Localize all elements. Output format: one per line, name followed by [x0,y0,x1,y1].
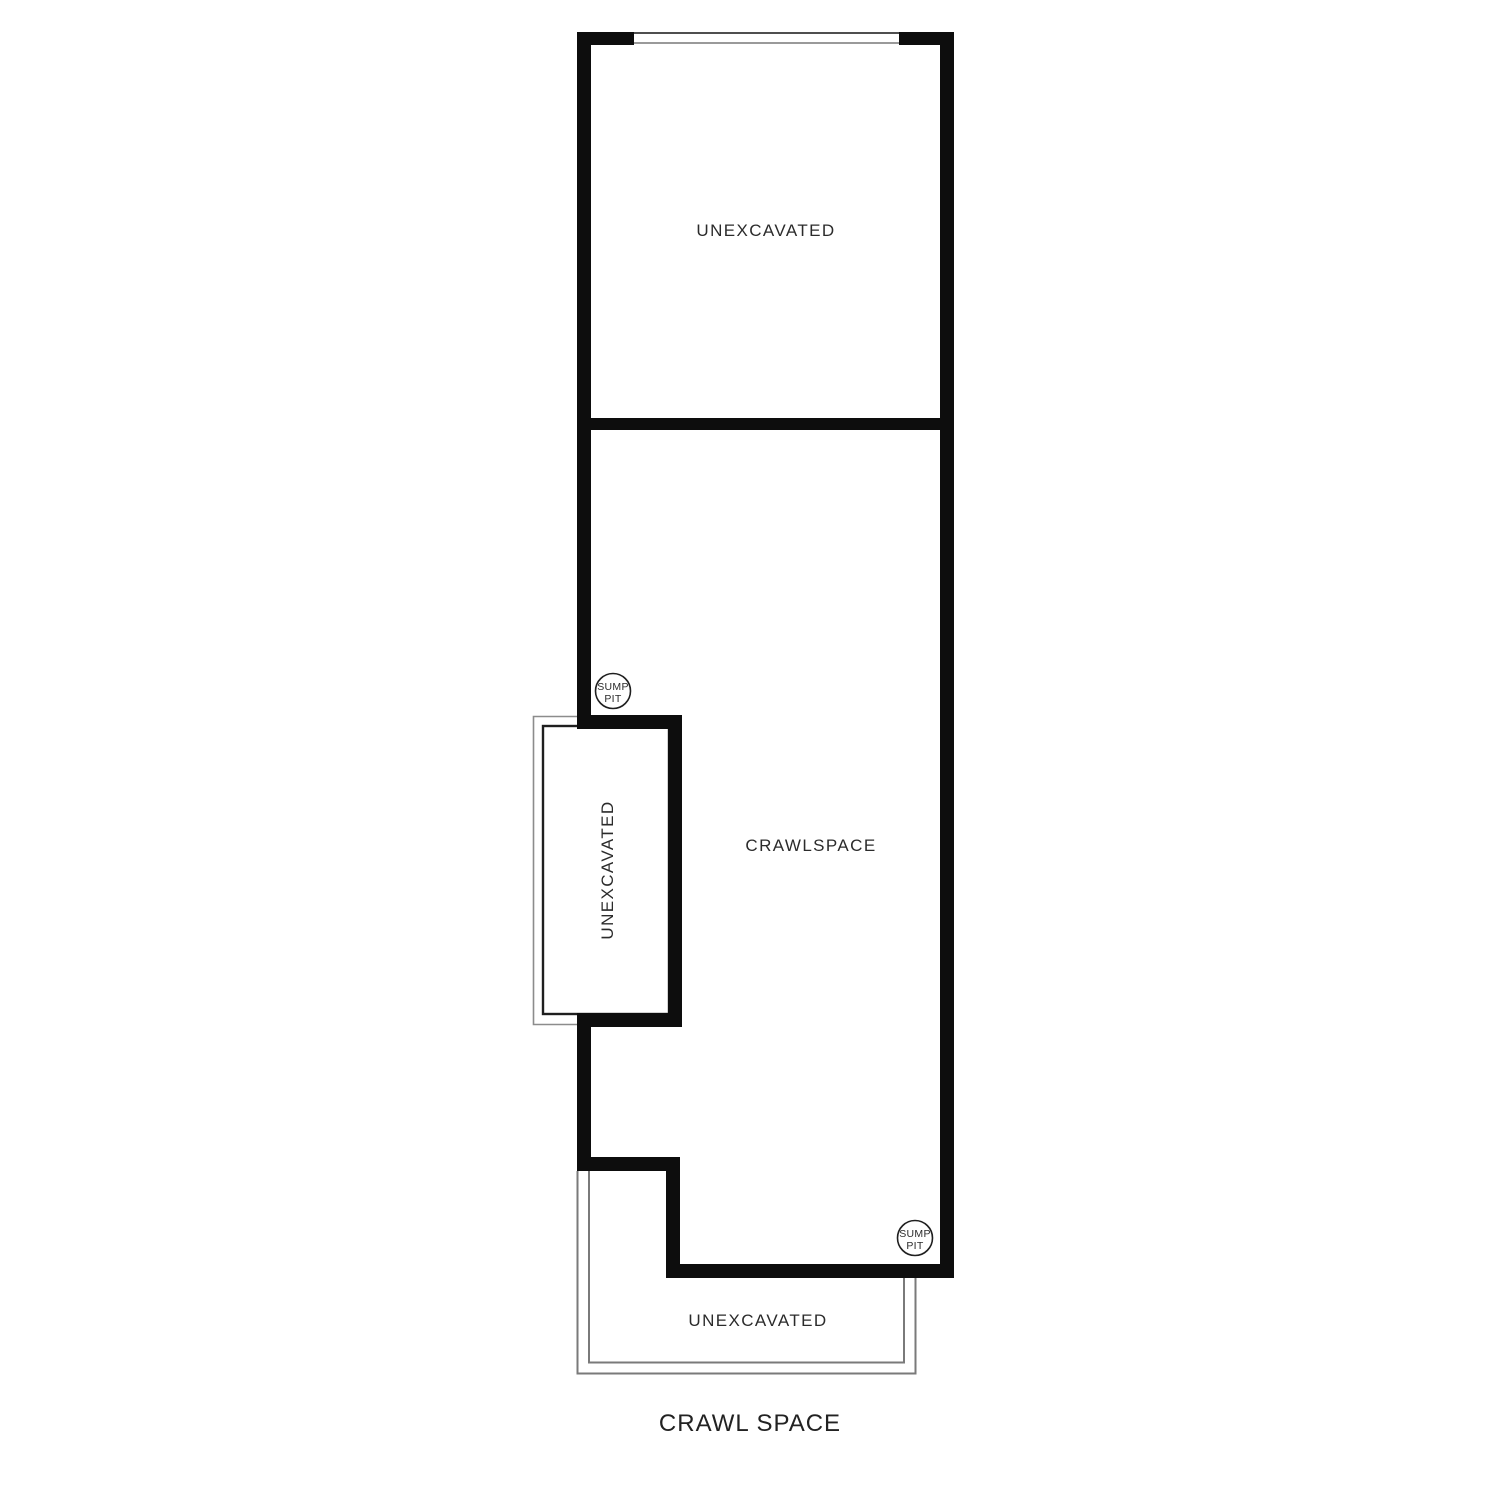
crawlspace-label: CRAWLSPACE [745,836,876,855]
wall-bay-right [668,715,682,1027]
sump-pit-upper-label-line1: SUMP [597,681,629,693]
floor-plan-drawing: SUMP PIT SUMP PIT UNEXCAVATED CRAWLSPACE… [0,0,1500,1500]
wall-bay-bottom [577,1013,682,1027]
sump-pit-lower-label-line2: PIT [906,1240,924,1252]
sump-pit-upper: SUMP PIT [596,674,631,709]
floor-plan-page: SUMP PIT SUMP PIT UNEXCAVATED CRAWLSPACE… [0,0,1500,1500]
sump-pit-lower: SUMP PIT [898,1221,933,1256]
wall-bottom [666,1264,954,1278]
plan-title: CRAWL SPACE [659,1410,841,1437]
wall-left-upper [577,32,591,729]
wall-left-lower [577,1013,591,1171]
bottom-unexcavated-label: UNEXCAVATED [688,1311,827,1330]
wall-step-horizontal [577,1157,680,1171]
wall-step-vertical [666,1157,680,1278]
top-unexcavated-label: UNEXCAVATED [696,221,835,240]
top-opening-upper-line [634,32,899,34]
top-opening-lower-line [634,42,899,44]
wall-divider [577,418,954,430]
wall-right [940,32,954,1278]
wall-bay-top [577,715,682,729]
left-bay-unexcavated-label: UNEXCAVATED [598,800,617,939]
sump-pit-upper-label-line2: PIT [604,693,622,705]
sump-pit-lower-label-line1: SUMP [899,1228,931,1240]
